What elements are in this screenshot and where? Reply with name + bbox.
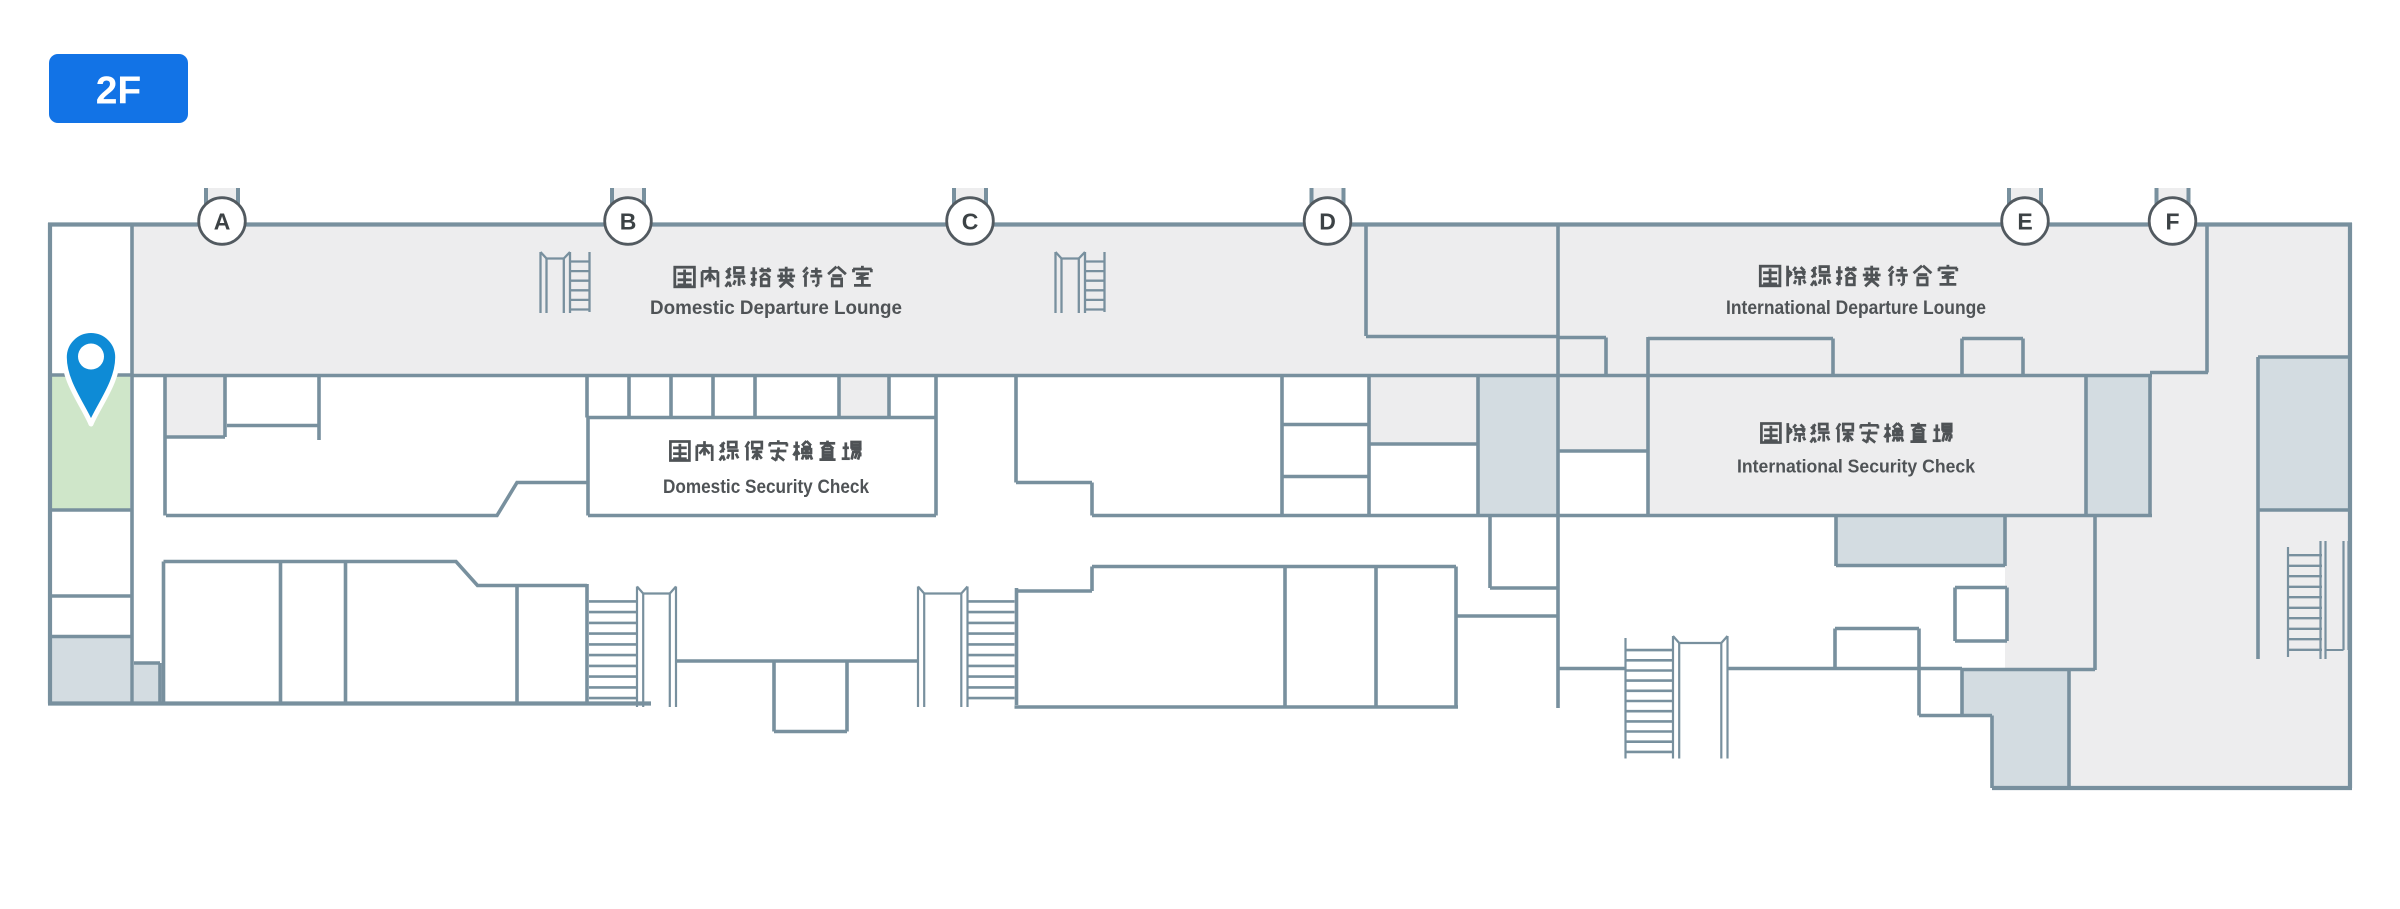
svg-text:D: D	[1319, 209, 1336, 235]
svg-text:Domestic Security Check: Domestic Security Check	[663, 477, 869, 498]
svg-text:2F: 2F	[96, 70, 142, 113]
svg-text:C: C	[962, 209, 979, 235]
svg-text:B: B	[620, 209, 637, 235]
svg-text:F: F	[2165, 209, 2179, 235]
svg-text:International Departure Lounge: International Departure Lounge	[1726, 298, 1986, 319]
svg-text:Domestic Departure Lounge: Domestic Departure Lounge	[650, 298, 902, 319]
svg-text:E: E	[2017, 209, 2032, 235]
svg-text:International Security Check: International Security Check	[1737, 456, 1976, 477]
svg-text:A: A	[214, 209, 231, 235]
